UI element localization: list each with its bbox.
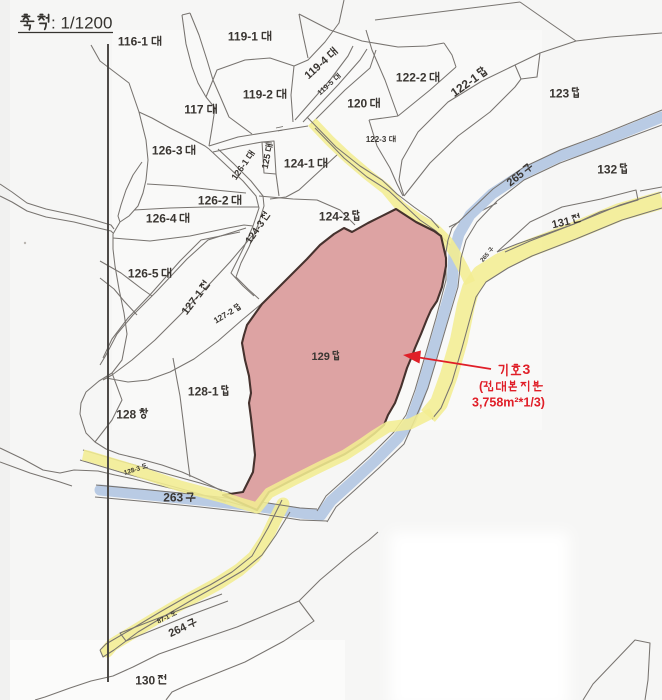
svg-text:128-1: 128-1 <box>188 384 219 398</box>
svg-text:126-3: 126-3 <box>152 143 183 157</box>
svg-text:126-2: 126-2 <box>198 193 229 207</box>
svg-text:3: 3 <box>523 361 531 377</box>
svg-text:132: 132 <box>597 162 617 176</box>
svg-text:117: 117 <box>184 102 204 116</box>
svg-text:129: 129 <box>312 351 330 363</box>
svg-text:3,758m²*1/3): 3,758m²*1/3) <box>472 396 545 410</box>
svg-text:124-1: 124-1 <box>284 156 315 170</box>
svg-text:122-2: 122-2 <box>396 70 427 84</box>
svg-text:126-4: 126-4 <box>146 211 177 225</box>
svg-text:122-3: 122-3 <box>366 135 387 144</box>
svg-text:130: 130 <box>135 673 155 687</box>
svg-text:120: 120 <box>347 96 367 110</box>
svg-text:116-1: 116-1 <box>118 34 148 48</box>
svg-text:119-1: 119-1 <box>228 29 258 43</box>
svg-text:126-5: 126-5 <box>128 266 159 280</box>
svg-text:128: 128 <box>116 407 136 421</box>
svg-text:263: 263 <box>163 490 183 504</box>
svg-text:124-2: 124-2 <box>319 209 350 223</box>
svg-text:123: 123 <box>549 86 569 100</box>
svg-text:: 1/1200: : 1/1200 <box>51 14 112 33</box>
svg-text:119-2: 119-2 <box>243 87 273 101</box>
